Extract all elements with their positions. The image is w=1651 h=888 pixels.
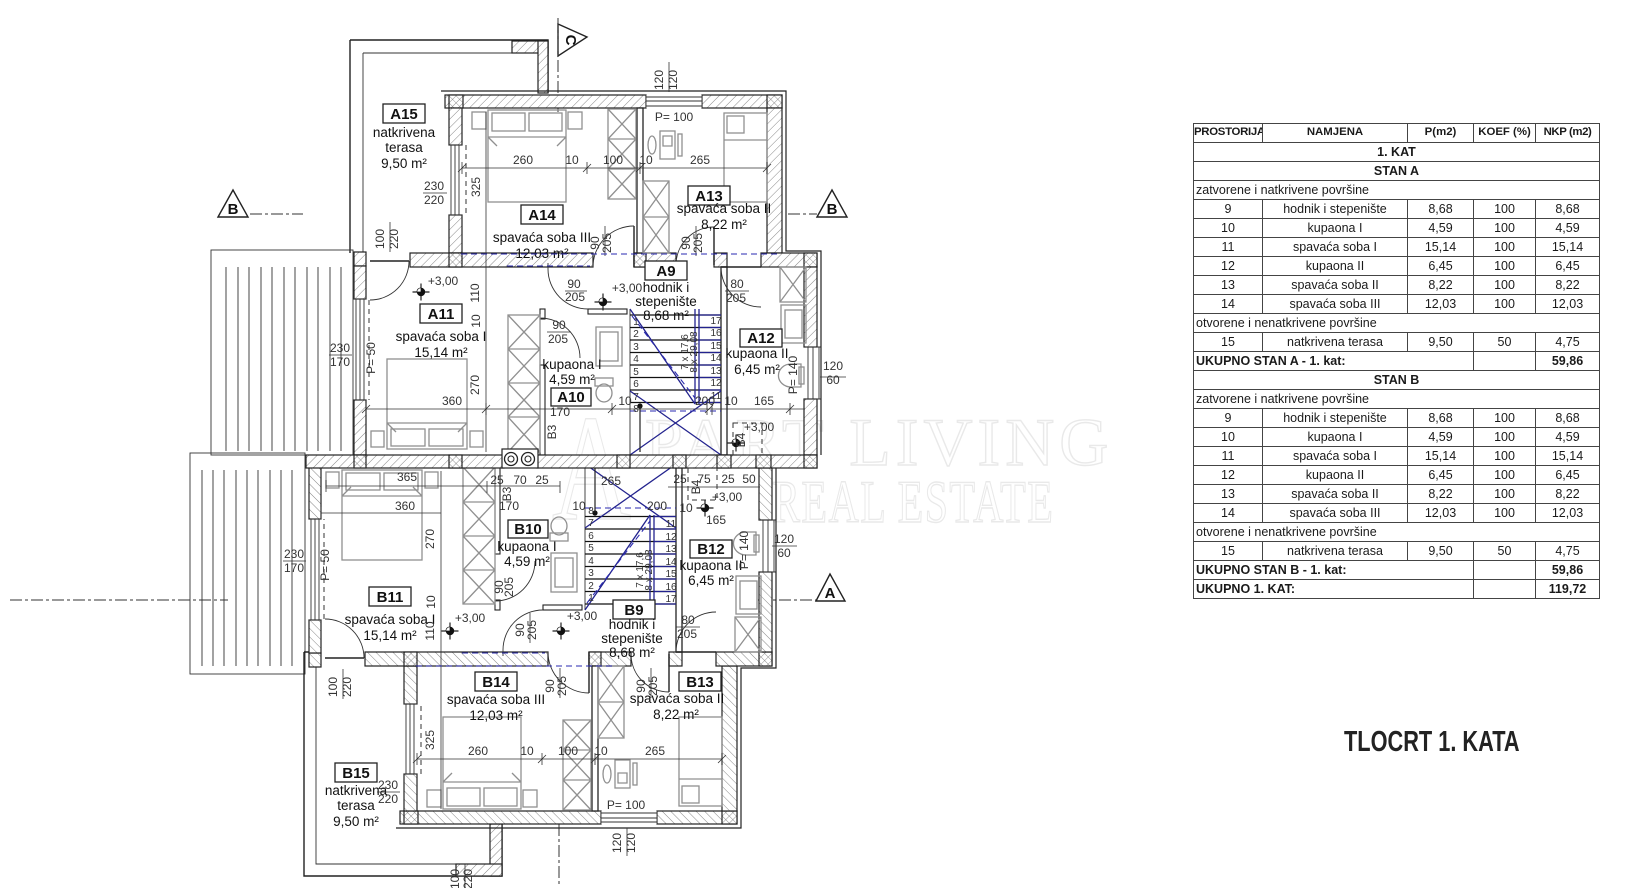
- svg-text:kupaona II: kupaona II: [725, 346, 788, 361]
- svg-text:120: 120: [666, 70, 680, 90]
- svg-text:A: A: [825, 585, 836, 602]
- svg-text:10: 10: [724, 394, 738, 408]
- svg-text:25: 25: [535, 473, 549, 487]
- svg-text:200: 200: [647, 499, 667, 513]
- svg-text:hodnik i: hodnik i: [643, 280, 690, 295]
- svg-text:B: B: [228, 201, 239, 218]
- svg-text:A14: A14: [528, 207, 556, 224]
- svg-text:7: 7: [588, 518, 594, 529]
- svg-text:8: 8: [588, 506, 594, 517]
- svg-text:A12: A12: [747, 330, 775, 347]
- svg-text:6: 6: [633, 379, 639, 390]
- svg-text:10: 10: [679, 501, 693, 515]
- svg-text:3: 3: [633, 342, 639, 353]
- svg-text:50: 50: [742, 472, 756, 486]
- svg-text:260: 260: [513, 153, 533, 167]
- svg-text:B12: B12: [697, 541, 725, 558]
- svg-text:220: 220: [461, 869, 475, 888]
- svg-text:15,14 m²: 15,14 m²: [414, 345, 468, 360]
- svg-text:13: 13: [710, 366, 722, 377]
- svg-text:265: 265: [601, 474, 621, 488]
- svg-text:17: 17: [665, 594, 677, 605]
- svg-text:220: 220: [387, 229, 401, 249]
- svg-text:B11: B11: [377, 589, 404, 606]
- svg-text:230: 230: [424, 179, 444, 193]
- svg-text:265: 265: [690, 153, 710, 167]
- svg-text:110: 110: [423, 621, 437, 640]
- svg-text:110: 110: [468, 283, 482, 302]
- svg-text:100: 100: [326, 677, 340, 697]
- svg-text:8,68 m²: 8,68 m²: [609, 645, 655, 660]
- svg-text:220: 220: [340, 677, 354, 697]
- svg-text:+3,00: +3,00: [744, 420, 775, 434]
- svg-text:170: 170: [330, 355, 350, 369]
- svg-text:spavaća soba I: spavaća soba I: [396, 329, 487, 344]
- svg-text:8 x 29,08: 8 x 29,08: [644, 549, 655, 591]
- svg-text:B10: B10: [514, 521, 542, 538]
- svg-text:kupaona I: kupaona I: [497, 539, 556, 554]
- svg-text:220: 220: [378, 792, 398, 806]
- svg-text:terasa: terasa: [385, 140, 423, 155]
- svg-text:260: 260: [468, 744, 488, 758]
- svg-text:5: 5: [588, 543, 594, 554]
- svg-text:205: 205: [525, 620, 539, 640]
- svg-text:C: C: [562, 35, 579, 46]
- svg-text:A11: A11: [428, 306, 455, 323]
- svg-text:120: 120: [610, 833, 624, 853]
- svg-text:205: 205: [726, 291, 746, 305]
- svg-text:10: 10: [520, 744, 534, 758]
- svg-text:25: 25: [490, 473, 504, 487]
- svg-text:P= 100: P= 100: [655, 110, 694, 124]
- svg-text:14: 14: [710, 353, 722, 364]
- svg-text:70: 70: [513, 473, 527, 487]
- svg-text:B3: B3: [545, 424, 559, 439]
- svg-text:4: 4: [633, 354, 639, 365]
- svg-text:100: 100: [558, 744, 578, 758]
- svg-text:15: 15: [710, 341, 722, 352]
- svg-text:270: 270: [468, 375, 482, 395]
- svg-text:P= 50: P= 50: [318, 549, 332, 581]
- svg-text:4,59 m²: 4,59 m²: [504, 554, 550, 569]
- svg-text:100: 100: [448, 869, 462, 888]
- svg-text:100: 100: [603, 153, 623, 167]
- svg-text:165: 165: [706, 513, 726, 527]
- svg-text:5: 5: [633, 367, 639, 378]
- svg-text:120: 120: [774, 532, 794, 546]
- svg-text:165: 165: [754, 394, 774, 408]
- svg-text:100: 100: [373, 229, 387, 249]
- svg-text:4,59 m²: 4,59 m²: [549, 372, 595, 387]
- svg-text:8,22 m²: 8,22 m²: [701, 217, 747, 232]
- svg-text:230: 230: [330, 341, 350, 355]
- svg-text:12,03 m²: 12,03 m²: [469, 708, 523, 723]
- svg-text:spavaća soba II: spavaća soba II: [677, 201, 772, 216]
- svg-text:A15: A15: [390, 106, 418, 123]
- svg-text:90: 90: [567, 277, 581, 291]
- svg-text:hodnik i: hodnik i: [609, 617, 656, 632]
- svg-text:P= 100: P= 100: [607, 798, 646, 812]
- svg-text:205: 205: [600, 233, 614, 253]
- svg-text:17: 17: [710, 316, 722, 327]
- svg-text:270: 270: [423, 529, 437, 549]
- svg-text:11: 11: [666, 519, 677, 530]
- svg-text:205: 205: [646, 676, 660, 696]
- svg-text:12: 12: [710, 378, 722, 389]
- svg-text:8,22 m²: 8,22 m²: [653, 707, 699, 722]
- svg-text:3: 3: [588, 568, 594, 579]
- svg-text:2: 2: [633, 329, 639, 340]
- svg-text:8: 8: [633, 404, 639, 415]
- svg-text:spavaća soba III: spavaća soba III: [447, 692, 545, 707]
- svg-text:spavaća soba I: spavaća soba I: [345, 612, 436, 627]
- svg-text:120: 120: [652, 70, 666, 90]
- svg-text:325: 325: [469, 177, 483, 197]
- svg-text:205: 205: [502, 577, 516, 597]
- svg-text:+3,00: +3,00: [567, 609, 598, 623]
- svg-text:kupaona I: kupaona I: [542, 357, 601, 372]
- svg-text:15,14 m²: 15,14 m²: [363, 628, 417, 643]
- svg-text:230: 230: [284, 547, 304, 561]
- svg-text:205: 205: [565, 290, 585, 304]
- svg-text:P= 50: P= 50: [364, 342, 378, 374]
- svg-text:spavaća soba III: spavaća soba III: [493, 230, 591, 245]
- svg-text:360: 360: [442, 394, 462, 408]
- svg-text:1: 1: [588, 593, 594, 604]
- svg-text:325: 325: [423, 730, 437, 750]
- svg-text:1: 1: [633, 317, 639, 328]
- svg-text:kupaona II: kupaona II: [679, 558, 742, 573]
- svg-text:+3,00: +3,00: [712, 490, 743, 504]
- svg-text:+3,00: +3,00: [612, 281, 643, 295]
- svg-text:P= 140: P= 140: [737, 530, 751, 569]
- svg-text:205: 205: [691, 233, 705, 253]
- svg-text:+3,00: +3,00: [428, 274, 459, 288]
- svg-text:205: 205: [677, 627, 697, 641]
- svg-text:+3,00: +3,00: [455, 611, 486, 625]
- svg-text:A10: A10: [557, 389, 585, 406]
- svg-text:B4: B4: [689, 479, 703, 494]
- svg-text:6,45 m²: 6,45 m²: [734, 362, 780, 377]
- svg-text:170: 170: [550, 405, 570, 419]
- svg-text:A9: A9: [656, 263, 675, 280]
- svg-text:16: 16: [710, 328, 722, 339]
- svg-text:10: 10: [639, 153, 653, 167]
- svg-text:10: 10: [572, 499, 586, 513]
- svg-text:stepenište: stepenište: [635, 294, 697, 309]
- svg-text:9,50 m²: 9,50 m²: [333, 814, 379, 829]
- svg-text:13: 13: [665, 544, 677, 555]
- svg-text:P= 140: P= 140: [786, 355, 800, 394]
- svg-text:265: 265: [645, 744, 665, 758]
- svg-text:90: 90: [552, 318, 566, 332]
- svg-text:60: 60: [777, 546, 791, 560]
- svg-text:2: 2: [588, 581, 594, 592]
- svg-text:8 x 29,08: 8 x 29,08: [689, 331, 700, 373]
- svg-text:B: B: [827, 201, 838, 218]
- svg-text:25: 25: [673, 472, 687, 486]
- svg-text:4: 4: [588, 556, 594, 567]
- svg-text:6,45 m²: 6,45 m²: [688, 573, 734, 588]
- svg-text:120: 120: [823, 359, 843, 373]
- svg-text:16: 16: [665, 582, 677, 593]
- svg-text:14: 14: [665, 557, 677, 568]
- svg-text:10: 10: [565, 153, 579, 167]
- svg-text:120: 120: [624, 833, 638, 853]
- svg-text:terasa: terasa: [337, 798, 375, 813]
- svg-text:80: 80: [681, 613, 695, 627]
- svg-text:25: 25: [721, 472, 735, 486]
- svg-text:200: 200: [695, 394, 715, 408]
- svg-text:10: 10: [618, 394, 632, 408]
- svg-text:12: 12: [665, 532, 677, 543]
- svg-text:10: 10: [594, 744, 608, 758]
- svg-text:10: 10: [469, 314, 483, 328]
- svg-text:220: 220: [424, 193, 444, 207]
- svg-text:10: 10: [424, 595, 438, 609]
- svg-text:205: 205: [548, 332, 568, 346]
- svg-text:6: 6: [588, 531, 594, 542]
- svg-text:15: 15: [665, 569, 677, 580]
- svg-text:360: 360: [395, 499, 415, 513]
- svg-text:B14: B14: [482, 674, 510, 691]
- svg-text:170: 170: [284, 561, 304, 575]
- svg-text:8,68 m²: 8,68 m²: [643, 308, 689, 323]
- svg-text:B13: B13: [686, 674, 714, 691]
- svg-text:B15: B15: [342, 765, 370, 782]
- svg-text:B4: B4: [734, 432, 748, 447]
- svg-text:stepenište: stepenište: [601, 631, 663, 646]
- svg-text:9,50 m²: 9,50 m²: [381, 156, 427, 171]
- svg-text:80: 80: [730, 277, 744, 291]
- svg-text:205: 205: [555, 676, 569, 696]
- svg-text:B3: B3: [500, 486, 514, 501]
- svg-text:60: 60: [826, 373, 840, 387]
- svg-text:natkrivena: natkrivena: [373, 125, 436, 140]
- svg-text:230: 230: [378, 778, 398, 792]
- svg-text:7: 7: [633, 392, 639, 403]
- svg-text:365: 365: [397, 470, 417, 484]
